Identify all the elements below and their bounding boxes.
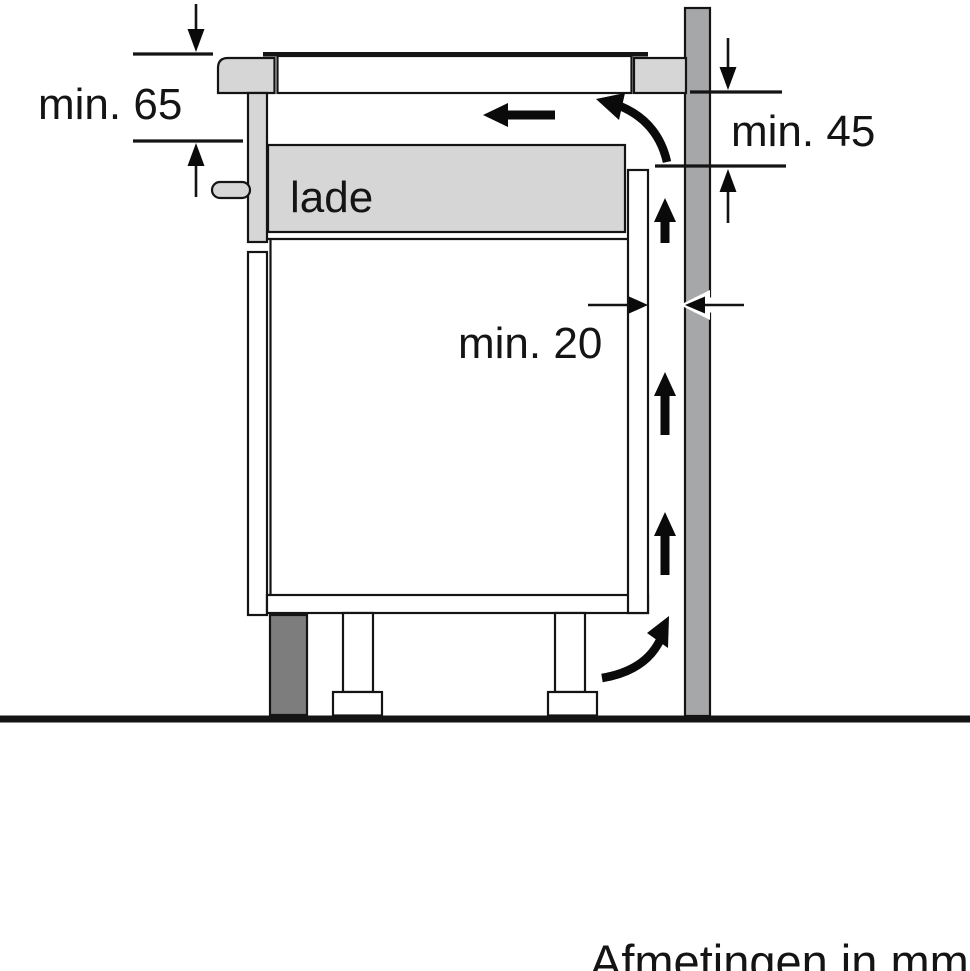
installation-diagram: min. 65 min. 45 min. 20 bbox=[0, 0, 970, 971]
worktop-back-section bbox=[634, 58, 686, 93]
back-spacer-panel bbox=[628, 170, 648, 613]
airflow-turn-curve bbox=[620, 106, 667, 162]
floor-line bbox=[0, 716, 970, 723]
drawer-front-panel bbox=[248, 93, 267, 242]
dimension-worktop-to-drawer: min. 65 bbox=[38, 4, 243, 197]
airflow-inlet-curve bbox=[602, 633, 663, 678]
airflow-up-arrow-lower-icon bbox=[654, 512, 676, 575]
kitchen-wall bbox=[685, 8, 710, 716]
footnote-units: Afmetingen in mm bbox=[590, 935, 969, 971]
hob-installation-cross-section: min. 65 min. 45 min. 20 bbox=[0, 0, 970, 971]
airflow-up-arrow-middle-icon bbox=[654, 372, 676, 435]
airflow-left-arrow-icon bbox=[483, 103, 555, 127]
drawer-label: lade bbox=[290, 173, 373, 222]
front-leg bbox=[343, 613, 373, 692]
label-min-20: min. 20 bbox=[458, 319, 602, 368]
worktop-front-section bbox=[218, 58, 275, 93]
cabinet-bottom-panel bbox=[267, 595, 648, 613]
plinth-panel bbox=[270, 615, 307, 715]
dim-arrow-down-icon bbox=[188, 29, 205, 52]
dim-arrow-up-icon bbox=[720, 169, 737, 192]
hob-top-plate bbox=[263, 52, 648, 57]
cabinet-door-front bbox=[248, 252, 267, 615]
base-cabinet bbox=[212, 52, 686, 716]
airflow-turn-arrowhead-icon bbox=[596, 93, 625, 120]
label-min-45: min. 45 bbox=[731, 107, 875, 156]
hob-body bbox=[278, 56, 632, 93]
back-leg-foot bbox=[548, 692, 597, 716]
label-min-65: min. 65 bbox=[38, 80, 182, 129]
back-leg bbox=[555, 613, 585, 692]
front-leg-foot bbox=[333, 692, 382, 716]
drawer-handle bbox=[212, 182, 250, 198]
dim-arrow-up-icon bbox=[188, 143, 205, 166]
airflow-up-arrow-upper-icon bbox=[654, 198, 676, 243]
dim-arrow-down-icon bbox=[720, 67, 737, 90]
